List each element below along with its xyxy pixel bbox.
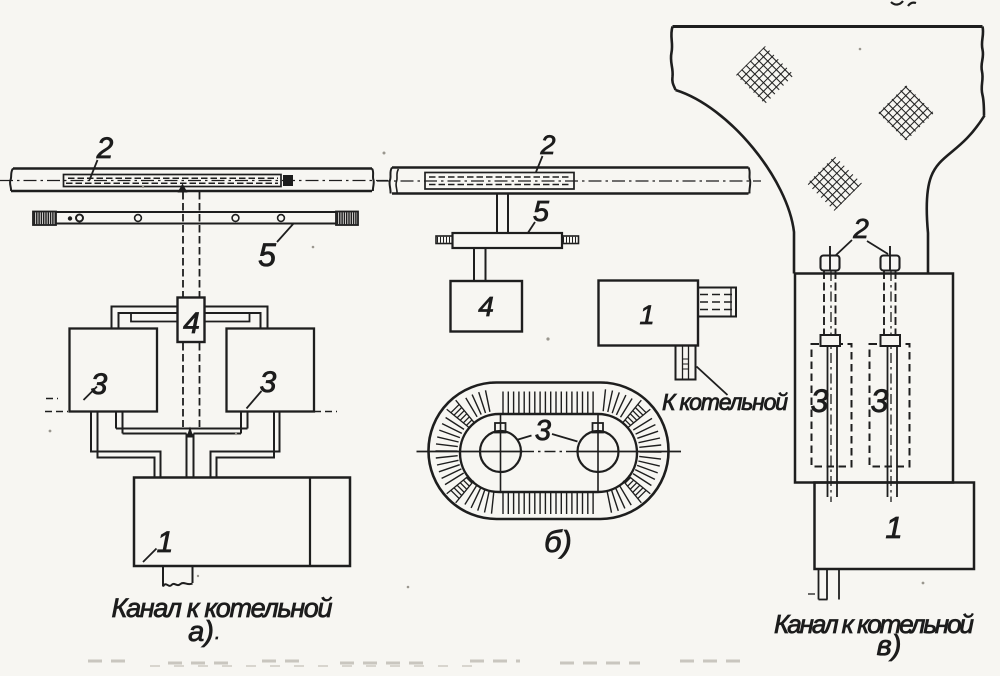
svg-text:3: 3 [260, 366, 277, 399]
svg-text:1: 1 [885, 510, 902, 545]
svg-text:в): в) [877, 630, 902, 662]
svg-text:б): б) [544, 524, 572, 559]
svg-text:1: 1 [639, 300, 654, 330]
svg-text:5: 5 [533, 196, 550, 228]
svg-text:3: 3 [91, 368, 108, 401]
svg-text:3: 3 [871, 383, 889, 419]
svg-text:.: . [215, 623, 220, 643]
svg-text:3: 3 [811, 383, 829, 419]
svg-text:2: 2 [852, 213, 869, 244]
svg-text:2: 2 [96, 132, 114, 165]
svg-text:4: 4 [183, 307, 200, 340]
svg-text:Канал к котельной: Канал к котельной [112, 593, 333, 623]
svg-text:4: 4 [478, 291, 494, 322]
svg-text:1: 1 [157, 526, 174, 559]
svg-text:2: 2 [539, 130, 555, 160]
svg-text:Канал к котельной: Канал к котельной [774, 609, 974, 639]
svg-text:3: 3 [535, 415, 551, 447]
svg-text:5: 5 [258, 237, 276, 273]
svg-text:а): а) [188, 616, 214, 648]
svg-text:К котельной: К котельной [662, 389, 788, 415]
